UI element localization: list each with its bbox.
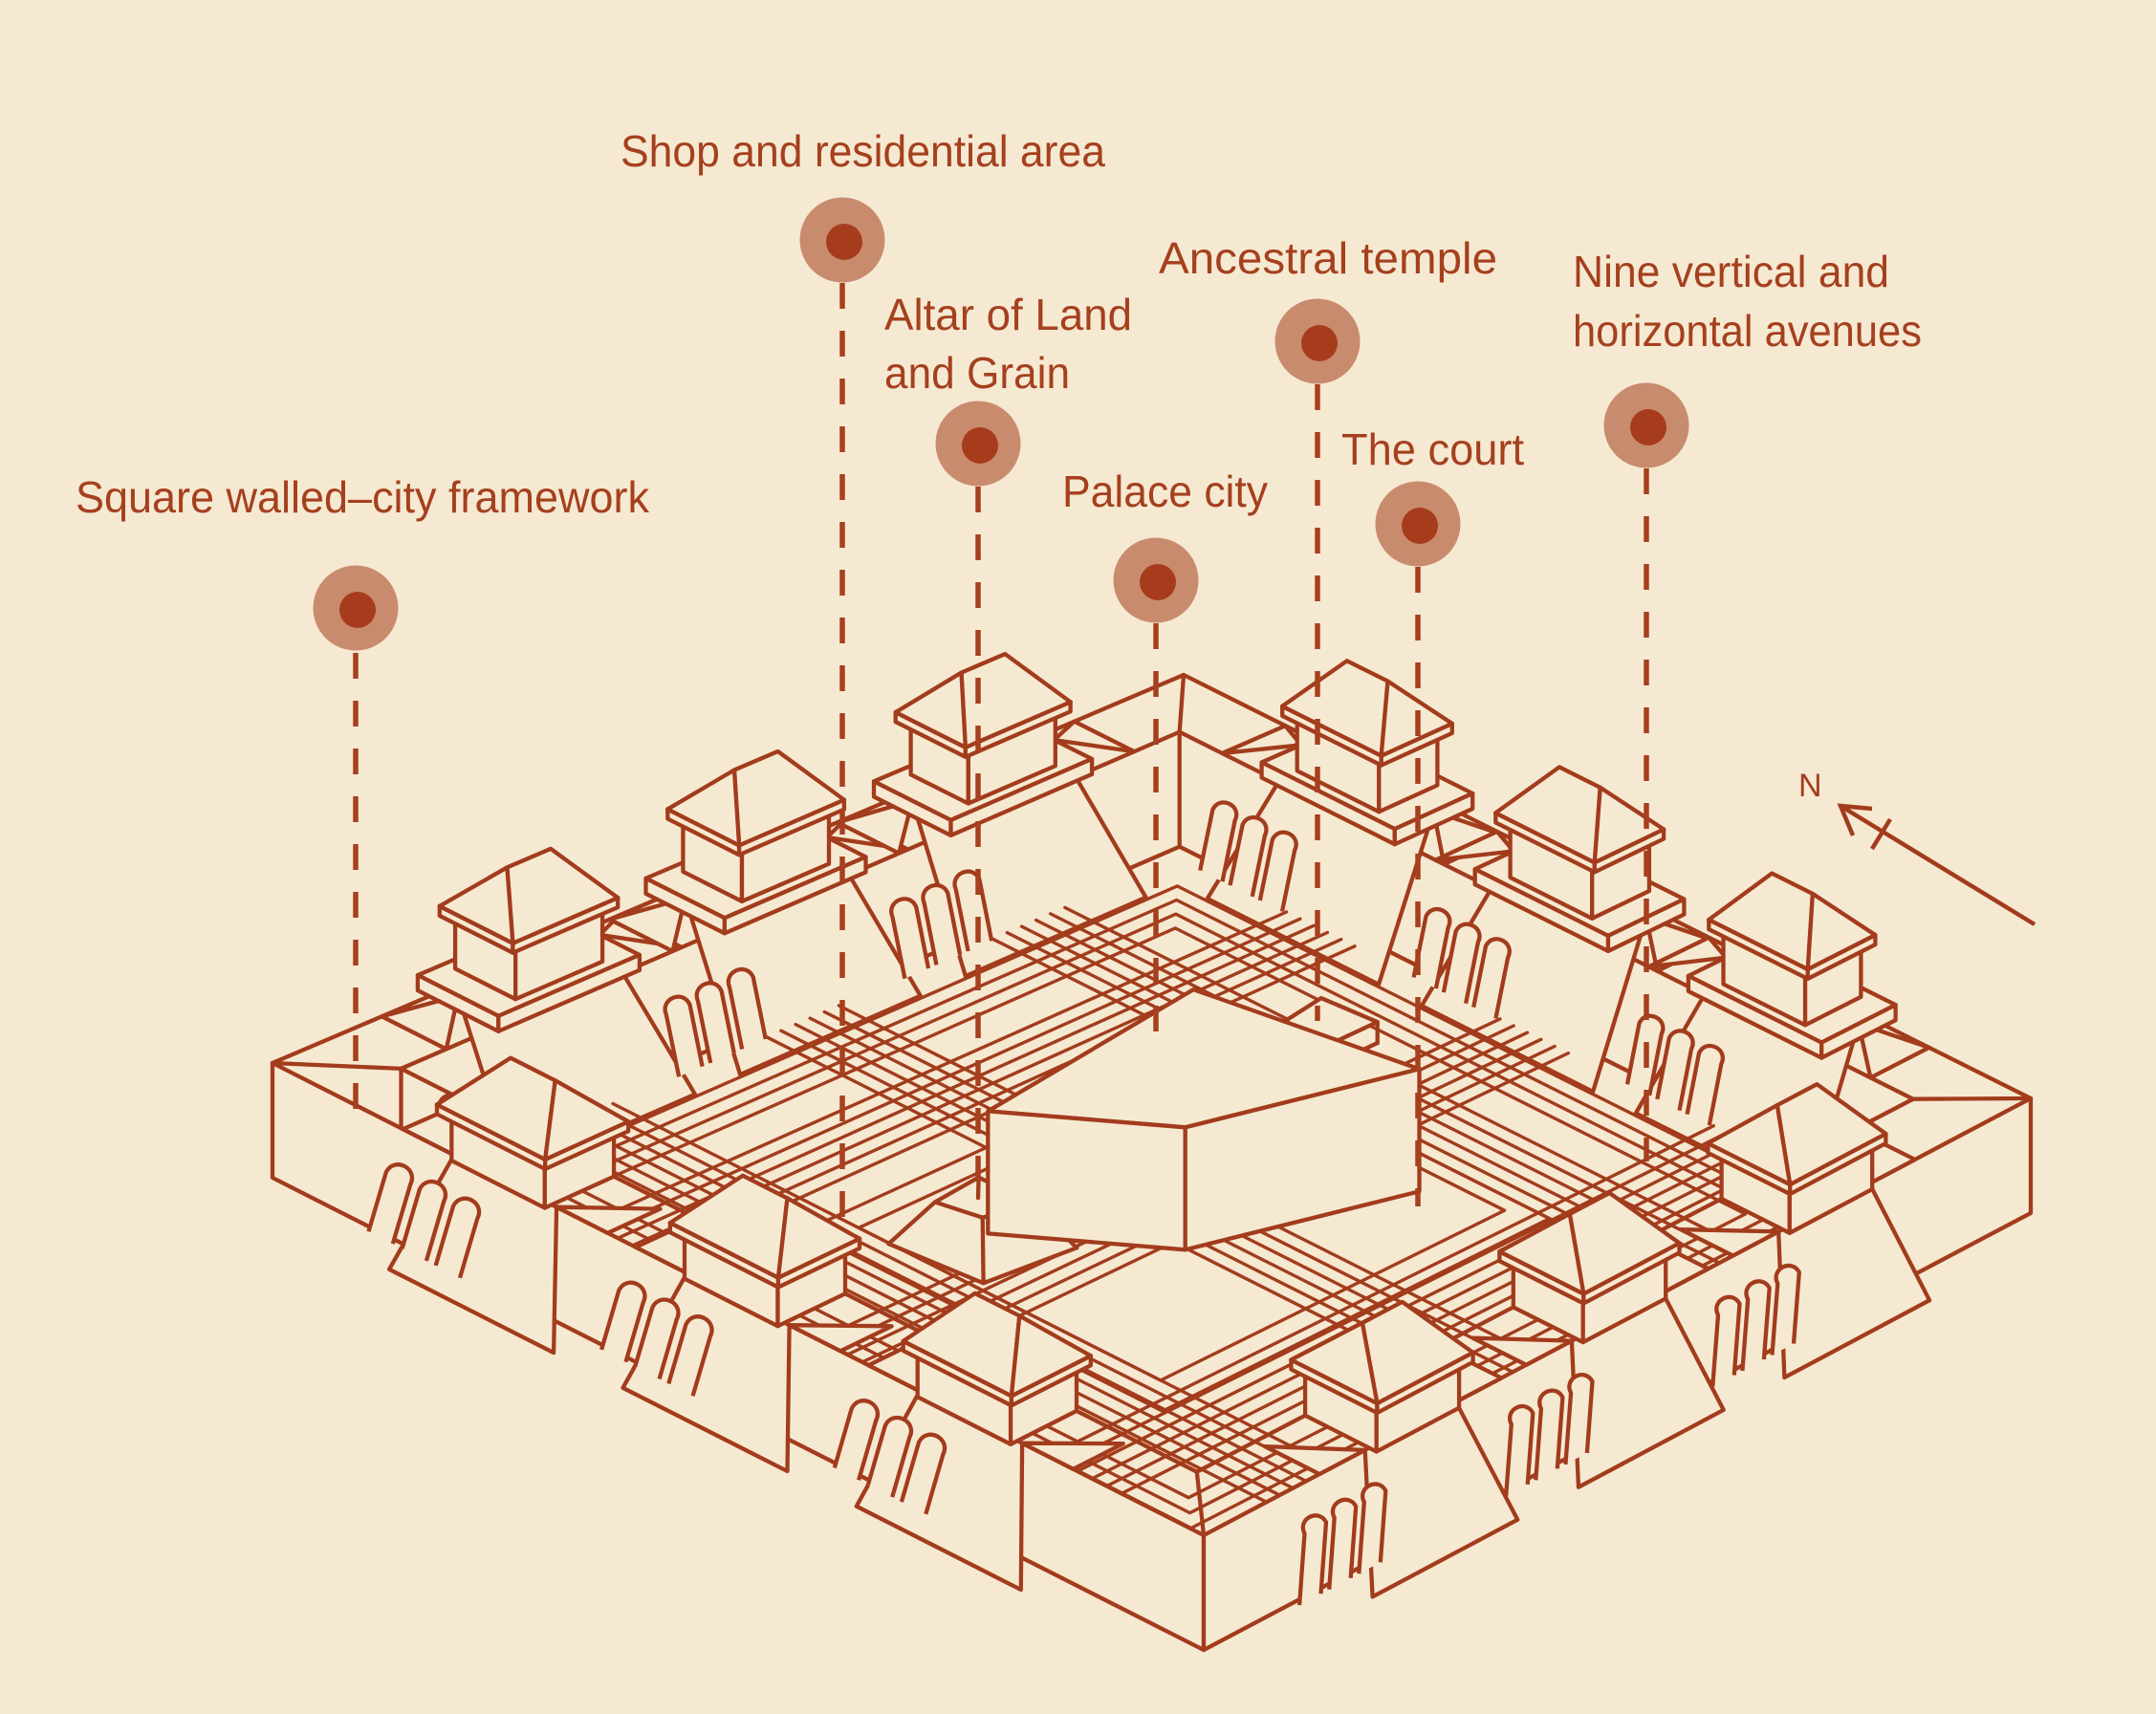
- svg-text:N: N: [1798, 768, 1822, 804]
